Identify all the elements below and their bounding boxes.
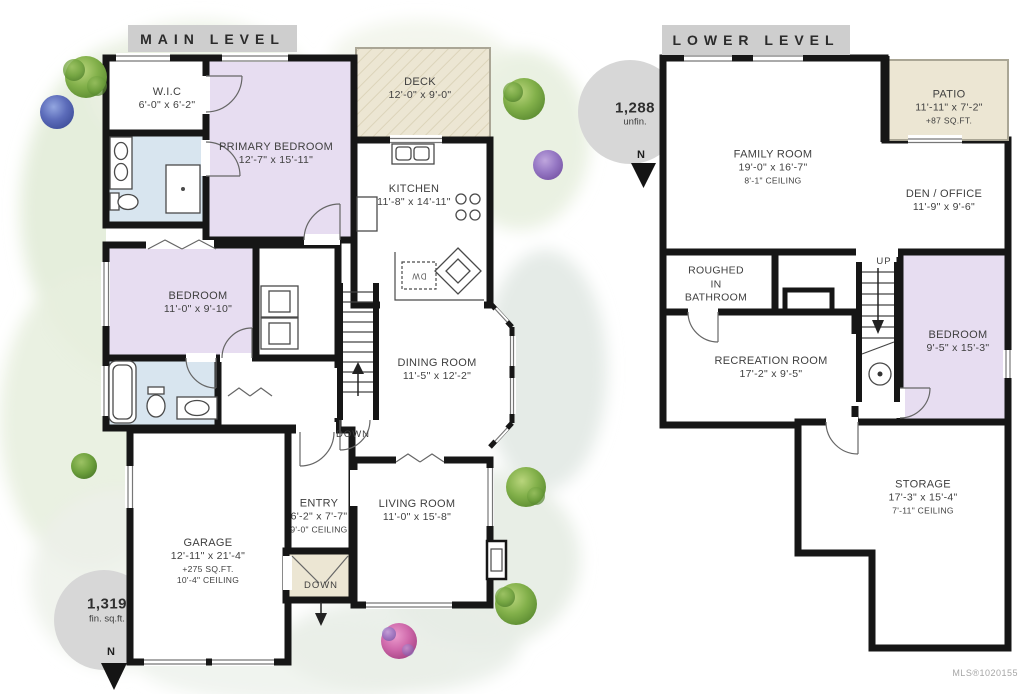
room-label-entry: ENTRY 6'-2" x 7'-7" 9'-0" CEILING: [290, 497, 347, 536]
room-label-garage: GARAGE 12'-11" x 21'-4" +275 SQ.FT. 10'-…: [171, 536, 245, 586]
room-label-wic: W.I.C 6'-0" x 6'-2": [139, 85, 196, 113]
main-level-title: MAIN LEVEL: [128, 25, 297, 52]
entry-landing: [286, 551, 352, 600]
lower-sqft-caption: unfin.: [623, 117, 646, 128]
room-living: [354, 460, 490, 605]
room-label-dining-room: DINING ROOM 11'-5" x 12'-2": [397, 356, 476, 384]
lower-north-label: N: [637, 149, 645, 161]
floorplan-canvas: MAIN LEVEL LOWER LEVEL W.I.C 6'-0" x 6'-…: [0, 0, 1023, 694]
room-storage: [798, 422, 1008, 648]
stairs-up-label: UP: [876, 256, 891, 268]
bush-icon: [71, 453, 97, 479]
room-label-deck: DECK 12'-0" x 9'-0": [389, 75, 452, 103]
room-label-living-room: LIVING ROOM 11'-0" x 15'-8": [379, 497, 456, 525]
stairs-down-label: DOWN: [336, 429, 370, 441]
fireplace-icon: [487, 541, 506, 579]
dishwasher-label: DW: [411, 272, 426, 281]
bush-icon: [503, 78, 545, 120]
main-north-label: N: [107, 646, 115, 658]
room-label-den-office: DEN / OFFICE 11'-9" x 9'-6": [906, 187, 982, 215]
main-sqft-value: 1,319: [87, 596, 127, 613]
stove-icon: [456, 194, 466, 204]
room-label-lower-bedroom: BEDROOM 9'-5" x 15'-3": [927, 328, 990, 356]
room-entry: [286, 430, 352, 555]
room-label-patio: PATIO 11'-11" x 7'-2" +87 SQ.FT.: [915, 88, 983, 127]
bush-icon: [506, 467, 546, 507]
pink-flowers-icon: [381, 623, 417, 659]
mls-number: MLS®1020155: [952, 668, 1018, 678]
main-sqft-caption: fin. sq.ft.: [89, 614, 125, 625]
stairs-lower: [859, 262, 897, 402]
room-hallway: [218, 358, 338, 428]
room-label-primary-bedroom: PRIMARY BEDROOM 12'-7" x 15'-11": [219, 140, 333, 168]
room-label-roughed-bathroom: ROUGHED IN BATHROOM: [685, 265, 747, 306]
north-arrow-icon: [101, 663, 127, 690]
room-label-family-room: FAMILY ROOM 19'-0" x 16'-7" 8'-1" CEILIN…: [734, 148, 813, 187]
blue-flowers-icon: [40, 95, 74, 129]
room-label-bedroom: BEDROOM 11'-0" x 9'-10": [164, 289, 232, 317]
bush-icon: [495, 583, 537, 625]
toilet-icon: [148, 387, 164, 394]
lower-sqft-value: 1,288: [615, 100, 655, 117]
purple-flowers-icon: [533, 150, 563, 180]
entry-down-label: DOWN: [304, 580, 338, 592]
room-label-kitchen: KITCHEN 11'-8" x 14'-11": [377, 182, 451, 210]
room-label-storage: STORAGE 17'-3" x 15'-4" 7'-11" CEILING: [888, 478, 957, 517]
room-label-recreation-room: RECREATION ROOM 17'-2" x 9'-5": [714, 354, 827, 382]
fridge-icon: [357, 197, 377, 231]
north-arrow-icon: [631, 163, 656, 188]
lower-level-title: LOWER LEVEL: [662, 25, 850, 55]
